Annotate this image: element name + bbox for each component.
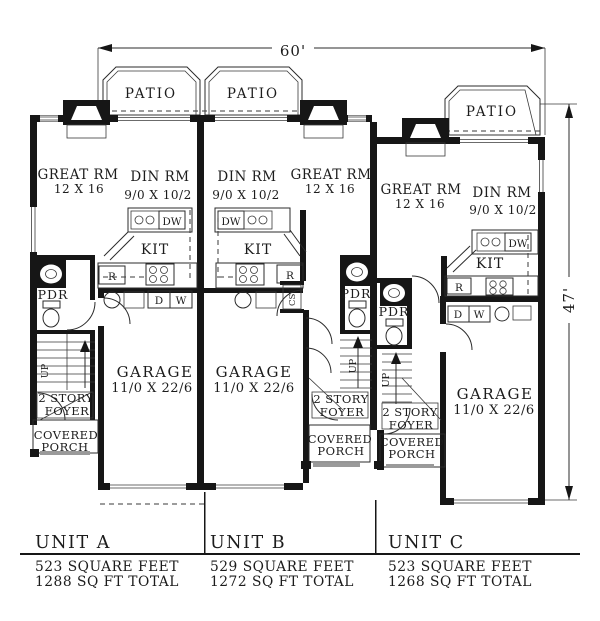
din-rm-b-label: DIN RM bbox=[217, 169, 276, 185]
patio-c-label: PATIO bbox=[466, 104, 518, 120]
foyer-a-line2: FOYER bbox=[45, 404, 90, 418]
dryer-a-label: D bbox=[155, 295, 163, 307]
footer-legend: UNIT A UNIT B UNIT C 523 SQUARE FEET 128… bbox=[20, 492, 580, 590]
range-icon bbox=[236, 264, 264, 285]
toilet-icon bbox=[349, 301, 366, 308]
great-rm-a-label: GREAT RM bbox=[37, 167, 118, 183]
din-rm-a-dims: 9/0 X 10/2 bbox=[124, 188, 191, 202]
fireplace-b-icon bbox=[300, 100, 347, 138]
fridge-b-label: R bbox=[286, 270, 295, 282]
garage-c-label: GARAGE bbox=[457, 385, 534, 403]
up-b-label: UP bbox=[348, 358, 359, 373]
great-rm-b-label: GREAT RM bbox=[290, 167, 371, 183]
counter bbox=[128, 208, 192, 232]
fireplace-a-icon bbox=[63, 100, 110, 138]
great-rm-c-dims: 12 X 16 bbox=[395, 197, 445, 211]
unit-b-name: UNIT B bbox=[210, 533, 286, 553]
porch-c-line2: PORCH bbox=[388, 447, 435, 461]
arrow-up-icon bbox=[565, 104, 573, 118]
washer-c-label: W bbox=[474, 309, 485, 321]
pdr-a-label: PDR bbox=[38, 287, 69, 302]
laundry-sink-icon bbox=[104, 292, 120, 308]
pdr-c-label: PDR bbox=[379, 304, 410, 319]
arrow-down-icon bbox=[565, 486, 573, 500]
great-rm-c-label: GREAT RM bbox=[380, 182, 461, 198]
din-rm-a-label: DIN RM bbox=[130, 169, 189, 185]
height-dimension-label: 47' bbox=[560, 287, 578, 313]
door-arc bbox=[306, 318, 332, 344]
foyer-c-line2: FOYER bbox=[389, 418, 434, 432]
garage-b-label: GARAGE bbox=[216, 363, 293, 381]
din-rm-c-label: DIN RM bbox=[472, 185, 531, 201]
laundry-sink-icon bbox=[495, 307, 509, 321]
kitchen-a-label: KIT bbox=[141, 242, 169, 258]
door-arc bbox=[104, 298, 130, 324]
patio-a-label: PATIO bbox=[125, 86, 177, 102]
porch-b-line2: PORCH bbox=[317, 444, 364, 458]
great-rm-b-dims: 12 X 16 bbox=[305, 182, 355, 196]
dishwasher-c-label: DW bbox=[508, 238, 527, 250]
up-a-label: UP bbox=[40, 363, 51, 378]
patio-a: PATIO bbox=[103, 67, 200, 115]
unit-c-area: 523 SQUARE FEET bbox=[388, 559, 532, 575]
great-rm-a-dims: 12 X 16 bbox=[54, 182, 104, 196]
foyer-c-line1: 2 STORY bbox=[382, 405, 437, 419]
toilet-icon bbox=[386, 319, 403, 326]
door-arc bbox=[412, 276, 439, 303]
up-c-label: UP bbox=[381, 372, 392, 387]
floor-plan-page: 60' 47' PATIO PATIO PATIO bbox=[0, 0, 600, 621]
dishwasher-b-label: DW bbox=[221, 216, 240, 228]
din-rm-c-dims: 9/0 X 10/2 bbox=[469, 203, 536, 217]
unit-a-area: 523 SQUARE FEET bbox=[35, 559, 179, 575]
width-dimension-label: 60' bbox=[280, 42, 306, 60]
fireplace-c-icon bbox=[402, 118, 449, 156]
floor-plan-drawing: 60' 47' PATIO PATIO PATIO bbox=[0, 0, 600, 621]
foyer-a-line1: 2 STORY bbox=[38, 391, 93, 405]
toilet-icon bbox=[43, 301, 60, 308]
foyer-b-line2: FOYER bbox=[320, 405, 365, 419]
dryer-c-label: D bbox=[454, 309, 462, 321]
fridge-c-label: R bbox=[455, 282, 464, 294]
patio-b: PATIO bbox=[205, 67, 302, 115]
door-arc bbox=[306, 348, 331, 373]
patio-c: PATIO bbox=[445, 86, 540, 135]
unit-a-plan: DW R D W bbox=[30, 167, 208, 504]
unit-c-plan: DW R D W bbox=[374, 182, 538, 505]
arrow-left-icon bbox=[98, 44, 112, 52]
unit-b-total: 1272 SQ FT TOTAL bbox=[210, 574, 354, 590]
door-arc bbox=[446, 324, 472, 350]
unit-c-name: UNIT C bbox=[388, 533, 465, 553]
din-rm-b-dims: 9/0 X 10/2 bbox=[212, 188, 279, 202]
kitchen-b-label: KIT bbox=[244, 242, 272, 258]
pdr-b-label: PDR bbox=[341, 286, 372, 301]
door-arc bbox=[67, 302, 95, 330]
range-icon bbox=[146, 264, 174, 285]
dishwasher-a-label: DW bbox=[162, 216, 181, 228]
arrow-right-icon bbox=[531, 44, 545, 52]
kitchen-c-label: KIT bbox=[476, 256, 504, 272]
unit-c-total: 1268 SQ FT TOTAL bbox=[388, 574, 532, 590]
garage-a-dims: 11/0 X 22/6 bbox=[111, 381, 192, 396]
patio-b-label: PATIO bbox=[227, 86, 279, 102]
porch-a-line2: PORCH bbox=[41, 440, 88, 454]
garage-a-label: GARAGE bbox=[117, 363, 194, 381]
unit-b-area: 529 SQUARE FEET bbox=[210, 559, 354, 575]
washer-a-label: W bbox=[176, 295, 187, 307]
unit-a-total: 1288 SQ FT TOTAL bbox=[35, 574, 179, 590]
garage-c-dims: 11/0 X 22/6 bbox=[453, 403, 534, 418]
foyer-b-line1: 2 STORY bbox=[313, 392, 368, 406]
unit-a-name: UNIT A bbox=[35, 533, 111, 553]
garage-b-dims: 11/0 X 22/6 bbox=[213, 381, 294, 396]
unit-b-plan: DW R CST bbox=[204, 167, 372, 490]
laundry-sink-icon bbox=[235, 292, 251, 308]
